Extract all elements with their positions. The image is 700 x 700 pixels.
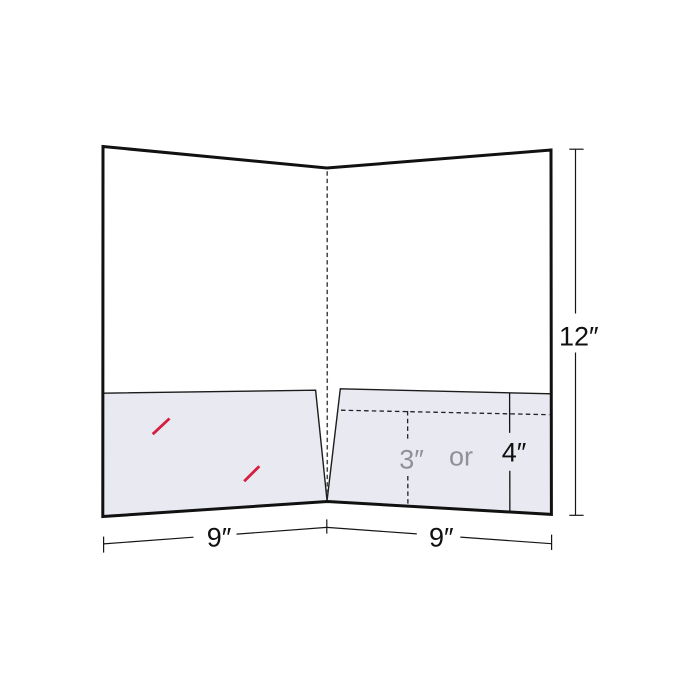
svg-text:4″: 4″ bbox=[502, 437, 527, 467]
svg-text:12″: 12″ bbox=[559, 321, 599, 351]
svg-text:9″: 9″ bbox=[207, 522, 232, 552]
svg-text:3″: 3″ bbox=[399, 444, 424, 474]
svg-text:9″: 9″ bbox=[429, 523, 454, 553]
svg-text:or: or bbox=[449, 442, 473, 472]
